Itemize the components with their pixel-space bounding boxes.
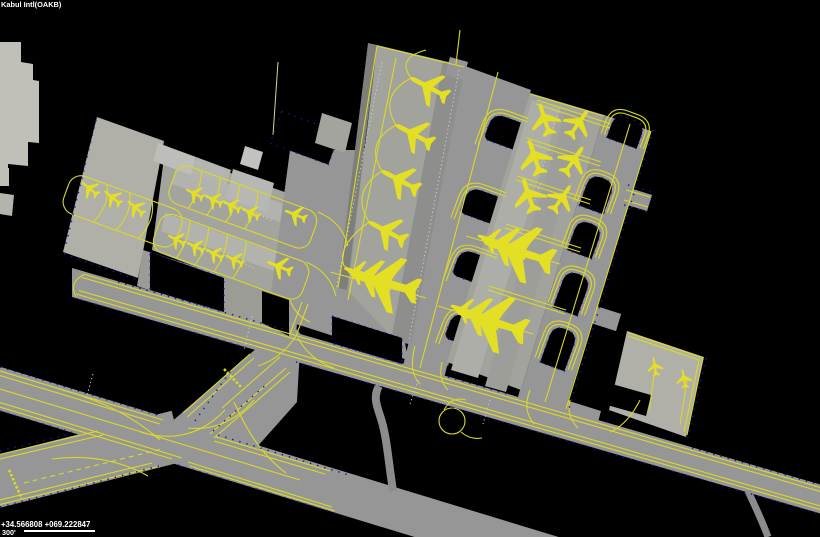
svg-text:Kabul Intl(OAKB): Kabul Intl(OAKB) [1,0,62,9]
svg-text:300': 300' [2,528,16,537]
